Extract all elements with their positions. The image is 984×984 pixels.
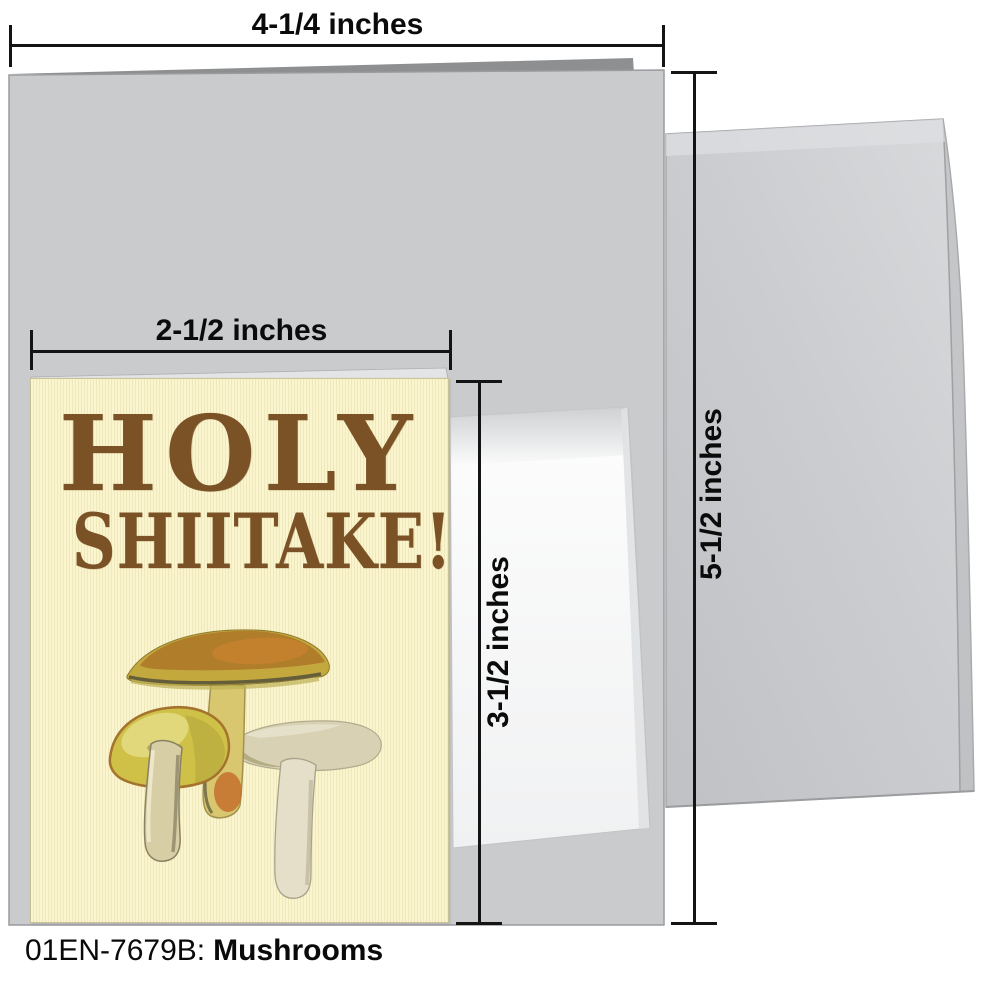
greeting-card: HOLY SHIITAKE! [30, 378, 449, 923]
product-caption: 01EN-7679B:Mushrooms [25, 934, 383, 968]
card-headline-line2: SHIITAKE! [72, 504, 407, 580]
product-mockup-scene: HOLY SHIITAKE! [0, 0, 984, 984]
card-width-dimension-line [31, 350, 452, 353]
card-width-label: 2-1/2 inches [31, 314, 452, 348]
card-height-label: 3-1/2 inches [480, 542, 518, 742]
outer-width-label: 4-1/4 inches [10, 8, 665, 42]
outer-height-label: 5-1/2 inches [693, 394, 731, 594]
outer-height-bottom-tick [671, 922, 717, 925]
outer-height-top-tick [671, 71, 717, 74]
mushroom-pale [232, 721, 382, 898]
card-height-bottom-tick [456, 922, 502, 925]
mushroom-top-cap [127, 630, 330, 688]
product-code: 01EN-7679B: [25, 934, 205, 967]
card-headline-line1: HOLY [30, 402, 449, 506]
outer-width-dimension-line [10, 44, 665, 47]
card-height-top-tick [456, 380, 502, 383]
mushroom-illustration [85, 620, 405, 920]
product-name: Mushrooms [213, 934, 383, 967]
